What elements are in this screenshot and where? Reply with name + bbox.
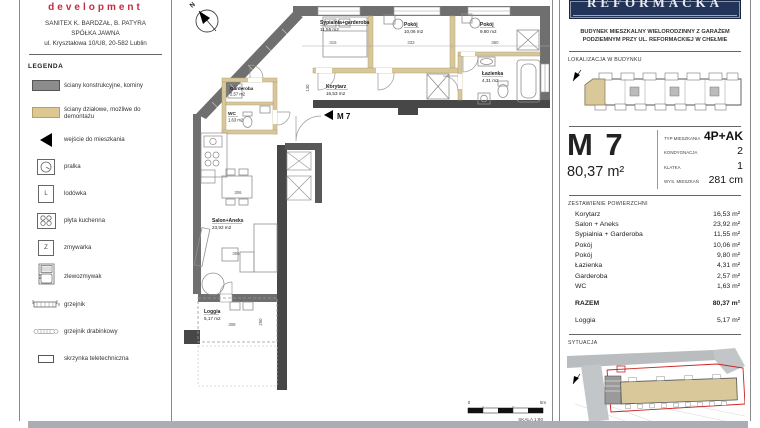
svg-text:5,17 m2: 5,17 m2 <box>204 316 221 321</box>
area-row: Sypialnia + Garderoba11,55 m² <box>567 230 743 240</box>
highlighted-unit <box>585 79 605 105</box>
legend-item-hob: płyta kuchenna <box>20 207 171 234</box>
floorplan-sheet: development SANITEX K. BARDZAŁ, B. PATYR… <box>0 0 760 428</box>
brand-gold-line <box>573 15 737 16</box>
svg-text:306: 306 <box>232 251 240 256</box>
svg-text:4,31 m2: 4,31 m2 <box>482 78 499 83</box>
area-row: WC1,63 m² <box>567 282 743 292</box>
svg-text:2,57 m2: 2,57 m2 <box>230 92 246 97</box>
location-title: LOKALIZACJA W BUDYNKU <box>568 57 743 63</box>
svg-text:10,06 m2: 10,06 m2 <box>404 29 424 34</box>
panel-divider <box>552 0 553 421</box>
legend-item-radiator: grzejnik <box>20 291 171 318</box>
door-openings <box>248 52 475 124</box>
spec-row-floor: KONDYGNACJA2 <box>664 145 743 160</box>
legend-sidebar: development SANITEX K. BARDZAŁ, B. PATYR… <box>19 0 172 421</box>
spec-row-type: TYP MIESZKANIA4P+AK <box>664 130 743 146</box>
svg-text:306: 306 <box>234 190 242 195</box>
structural-wall-swatch <box>32 80 60 91</box>
area-row: Korytarz16,53 m² <box>567 210 743 220</box>
building-locator <box>567 65 745 117</box>
svg-text:N: N <box>189 1 197 10</box>
building-description: BUDYNEK MIESZKALNY WIELORODZINNY Z GARAŻ… <box>567 28 743 45</box>
svg-text:Korytarz: Korytarz <box>326 84 347 90</box>
hob-icon <box>37 213 56 229</box>
radiator-icon <box>32 296 60 314</box>
svg-text:23,92 m2: 23,92 m2 <box>212 225 232 230</box>
entrance-marker: M 7 <box>324 110 351 121</box>
unit-code: M 7 <box>567 130 655 160</box>
kitchen-unit <box>201 133 227 183</box>
company-line-1: SANITEX K. BARDZAŁ, B. PATYRA <box>20 19 171 29</box>
areas-title: ZESTAWIENIE POWIERZCHNI <box>568 201 743 207</box>
areas-table: Korytarz16,53 m² Salon + Aneks23,92 m² S… <box>567 210 743 327</box>
footer-bar <box>28 421 748 428</box>
unit-summary: M 7 80,37 m² TYP MIESZKANIA4P+AK KONDYGN… <box>567 130 743 189</box>
entrance-triangle-icon <box>40 133 52 147</box>
svg-text:5m: 5m <box>540 400 547 405</box>
dishwasher-icon: Z <box>38 240 54 256</box>
svg-text:Salon+Aneks: Salon+Aneks <box>212 218 244 224</box>
scale-bar: 0 5m SKALA 1:80 <box>468 400 547 422</box>
legend-item-towel-radiator: grzejnik drabinkowy <box>20 318 171 345</box>
floor-plan: N <box>172 0 560 428</box>
svg-text:Łazienka: Łazienka <box>482 71 503 77</box>
window <box>318 7 510 15</box>
svg-text:333: 333 <box>407 40 415 45</box>
svg-text:1,63 m2: 1,63 m2 <box>228 118 244 123</box>
legend-item-structural-walls: ściany konstrukcyjne, kominy <box>20 72 171 99</box>
svg-text:WC: WC <box>228 111 237 117</box>
door-arcs <box>220 56 478 294</box>
sidebar-divider <box>29 54 162 55</box>
legend-item-telecom-box: skrzynka teletechniczna <box>20 345 171 372</box>
svg-text:11,55 m2: 11,55 m2 <box>320 27 339 32</box>
legend-item-dishwasher: Z zmywarka <box>20 234 171 261</box>
company-line-3: ul. Kryształowa 10/U8, 20-582 Lublin <box>20 39 171 49</box>
washer-icon <box>37 159 55 175</box>
svg-text:Garderoba: Garderoba <box>230 86 254 91</box>
area-row: Salon + Aneks23,92 m² <box>567 220 743 230</box>
legend-item-sink: zlewozmywak <box>20 261 171 291</box>
north-arrow-icon: N <box>189 1 218 32</box>
developer-logo: development <box>20 2 171 13</box>
building-footprint <box>621 378 738 404</box>
svg-text:Loggia: Loggia <box>204 309 221 315</box>
towel-radiator-icon <box>33 323 59 341</box>
legend-item-fridge: L lodówka <box>20 180 171 207</box>
svg-text:Pokój: Pokój <box>404 22 418 28</box>
area-row: Pokój10,06 m² <box>567 241 743 251</box>
partition-wall-swatch <box>32 107 60 118</box>
company-info: SANITEX K. BARDZAŁ, B. PATYRA SPÓŁKA JAW… <box>20 19 171 48</box>
area-loggia-row: Loggia5,17 m² <box>567 316 743 326</box>
fridge-icon: L <box>38 185 54 203</box>
area-row: Łazienka4,31 m² <box>567 261 743 271</box>
area-total-row: RAZEM80,37 m² <box>567 299 743 309</box>
svg-text:250: 250 <box>258 318 263 326</box>
road <box>713 348 745 374</box>
legend-item-washer: pralka <box>20 153 171 180</box>
company-line-2: SPÓŁKA JAWNA <box>20 29 171 39</box>
svg-text:308: 308 <box>228 322 236 327</box>
situation-title: SYTUACJA <box>568 340 743 346</box>
sink-icon <box>38 263 55 290</box>
svg-text:315: 315 <box>329 40 337 45</box>
staircase <box>287 152 311 200</box>
entrance-arrow-icon <box>324 110 333 120</box>
svg-text:9,80 m2: 9,80 m2 <box>480 29 497 34</box>
telecom-box-icon <box>38 355 54 363</box>
legend-item-entrance: wejście do mieszkania <box>20 126 171 153</box>
brand-logo: REFORMACKA <box>569 0 741 19</box>
site-plan <box>567 348 745 422</box>
svg-text:Sypialnia+garderoba: Sypialnia+garderoba <box>320 20 370 26</box>
svg-text:0: 0 <box>468 400 471 405</box>
spec-row-height: WYS. MIESZKAŃ281 cm <box>664 174 743 189</box>
svg-text:130: 130 <box>305 84 310 92</box>
svg-text:Pokój: Pokój <box>480 22 494 28</box>
svg-text:M 7: M 7 <box>337 112 351 121</box>
unit-area: 80,37 m² <box>567 164 655 180</box>
legend-item-partition-walls: ściany działowe, możliwe do demontażu <box>20 99 171 126</box>
svg-text:16,53 m2: 16,53 m2 <box>326 91 346 96</box>
svg-text:360: 360 <box>491 40 499 45</box>
area-row: Pokój9,80 m² <box>567 251 743 261</box>
info-panel: REFORMACKA BUDYNEK MIESZKALNY WIELORODZI… <box>559 0 751 421</box>
spec-row-staircase: KLATKA1 <box>664 160 743 175</box>
area-row: Garderoba2,57 m² <box>567 272 743 282</box>
legend-title: LEGENDA <box>28 63 171 70</box>
